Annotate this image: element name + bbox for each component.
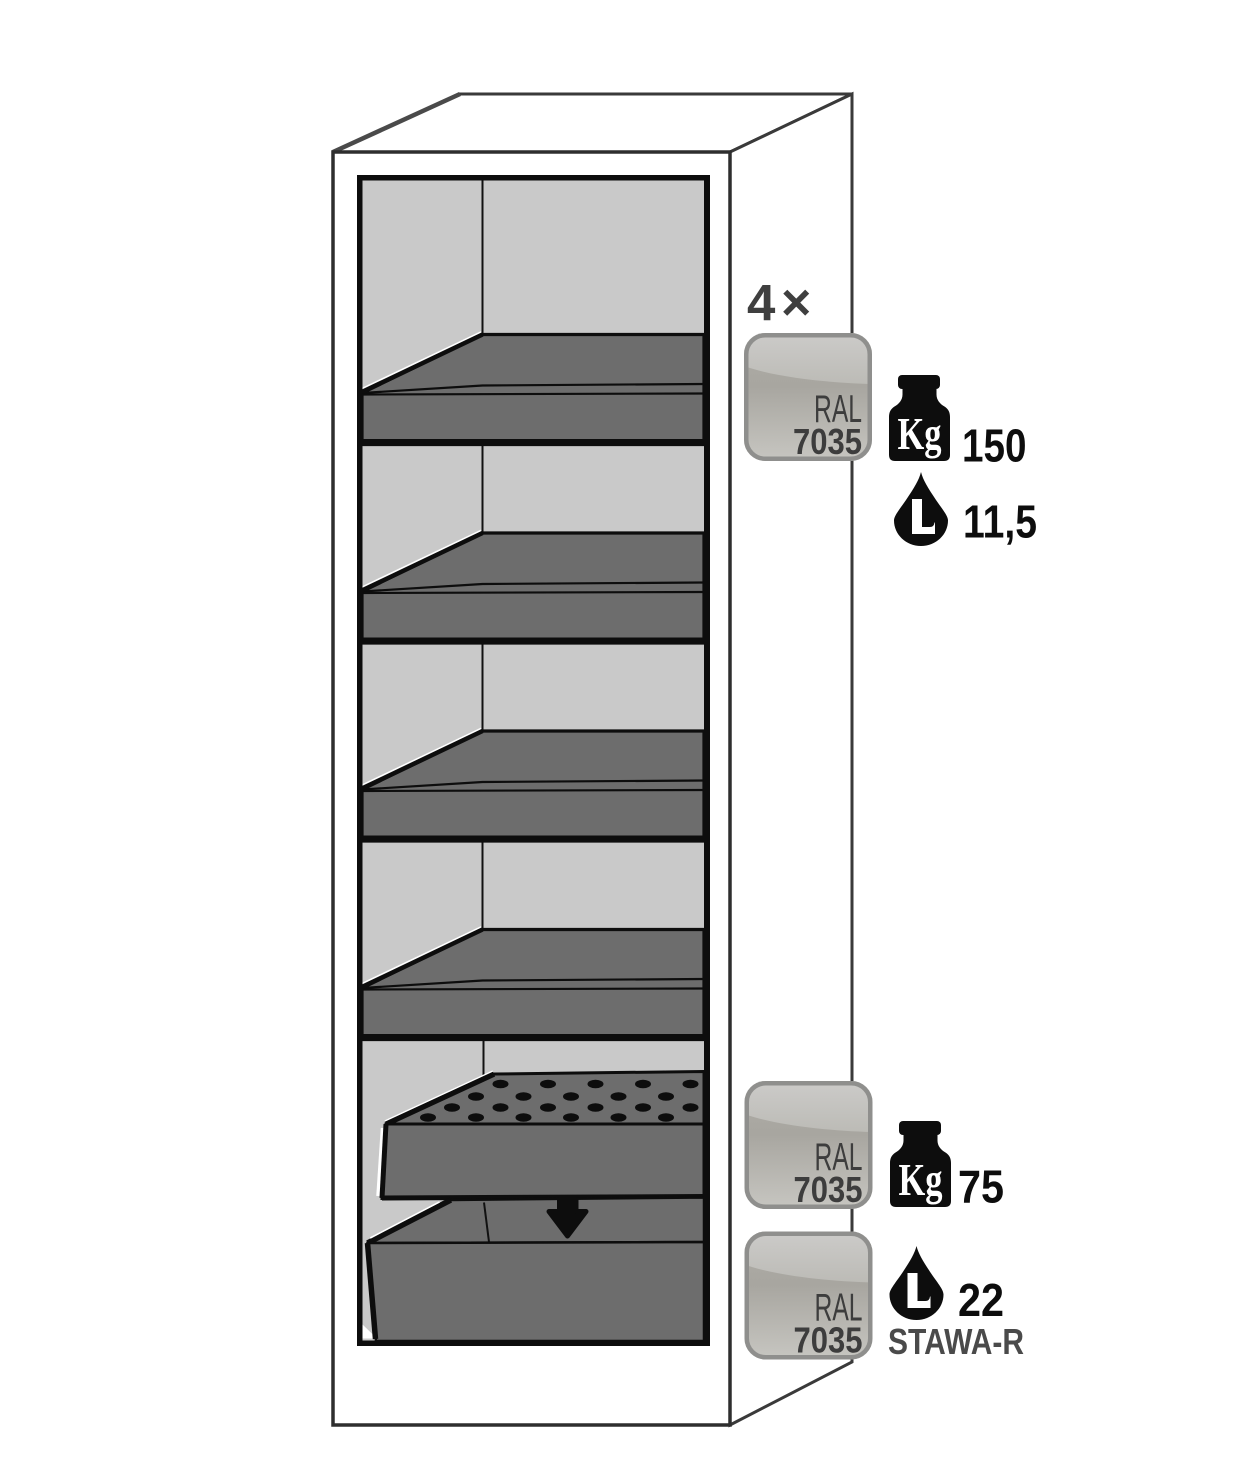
svg-text:22: 22	[958, 1274, 1004, 1326]
svg-text:×: ×	[781, 274, 811, 332]
svg-text:4: 4	[747, 274, 776, 331]
svg-text:11,5: 11,5	[963, 496, 1037, 548]
svg-text:STAWA-R: STAWA-R	[888, 1321, 1024, 1362]
svg-text:75: 75	[958, 1161, 1004, 1213]
svg-text:150: 150	[962, 420, 1027, 472]
